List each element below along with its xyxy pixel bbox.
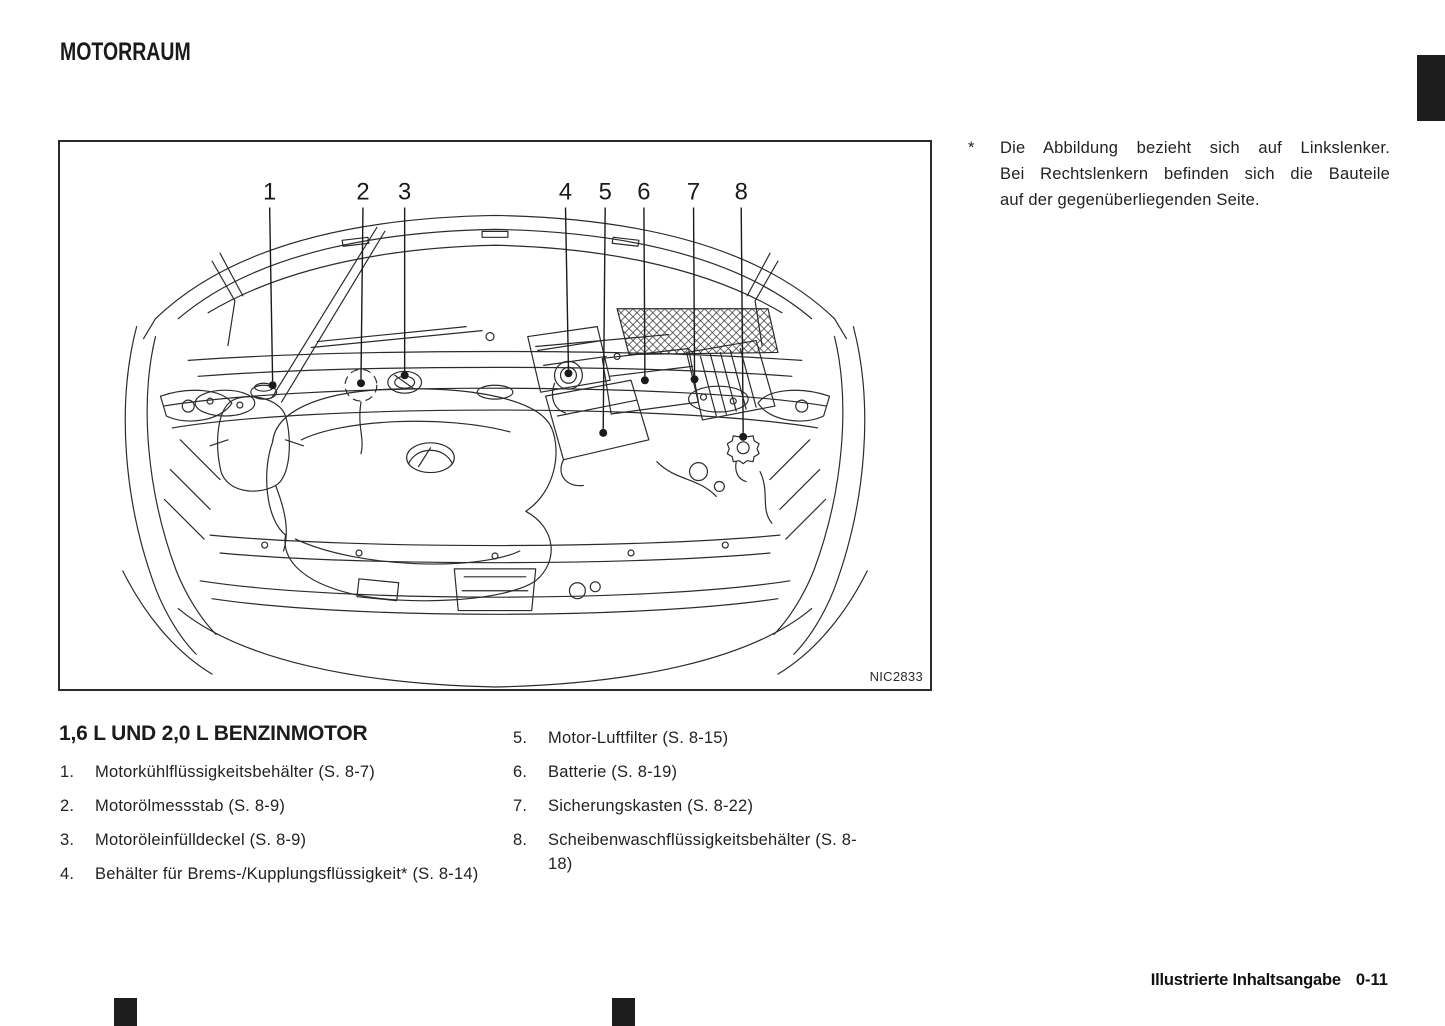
right-fender — [758, 327, 867, 674]
callout-number: 3 — [398, 179, 411, 206]
note-block: * Die Abbildung bezieht sich auf Linksle… — [968, 135, 1390, 213]
page-title: MOTORRAUM — [60, 38, 191, 67]
legend-list-left: 1. Motorkühlflüssigkeitsbehälter (S. 8-7… — [60, 760, 490, 896]
section-tab-marker — [1417, 55, 1445, 121]
legend-item-number: 5. — [513, 726, 548, 750]
cowl-and-wipers — [188, 309, 802, 377]
legend-item: 1. Motorkühlflüssigkeitsbehälter (S. 8-7… — [60, 760, 490, 784]
legend-item-number: 4. — [60, 862, 95, 886]
footer-page-number: 0-11 — [1356, 971, 1388, 990]
footer-section-label: Illustrierte Inhaltsangabe — [1151, 971, 1341, 990]
legend-item-text: Motoröleinfülldeckel (S. 8-9) — [95, 828, 480, 852]
legend-item-text: Scheibenwaschflüssigkeitsbehälter (S. 8-… — [548, 828, 880, 876]
legend-item-text: Behälter für Brems-/Kupplungsflüssigkeit… — [95, 862, 480, 886]
note-line: auf der gegenüberliegenden Seite. — [1000, 187, 1390, 213]
note-line: Bei Rechtslenkern befinden sich die Baut… — [1000, 161, 1390, 187]
legend-item: 7. Sicherungskasten (S. 8-22) — [513, 794, 893, 818]
callout-number: 1 — [263, 179, 276, 206]
legend-item-number: 8. — [513, 828, 548, 876]
engine-bay-drawing: 1 2 3 4 5 6 7 8 — [60, 142, 930, 689]
callout-number: 8 — [735, 179, 748, 206]
print-registration-mark — [612, 998, 635, 1026]
figure-code: NIC2833 — [870, 669, 923, 684]
engine-compartment-figure: 1 2 3 4 5 6 7 8 NIC2833 — [58, 140, 932, 691]
legend-heading: 1,6 L UND 2,0 L BENZINMOTOR — [59, 722, 368, 746]
legend-item-text: Batterie (S. 8-19) — [548, 760, 880, 784]
legend-list-right: 5. Motor-Luftfilter (S. 8-15) 6. Batteri… — [513, 726, 893, 886]
callout-number: 6 — [637, 179, 650, 206]
legend-item-text: Sicherungskasten (S. 8-22) — [548, 794, 880, 818]
legend-item: 2. Motorölmessstab (S. 8-9) — [60, 794, 490, 818]
note-asterisk: * — [968, 135, 975, 161]
callout-number: 2 — [356, 179, 369, 206]
hose-details — [657, 462, 772, 524]
brand-logo-icon — [407, 443, 455, 473]
legend-item-text: Motorkühlflüssigkeitsbehälter (S. 8-7) — [95, 760, 480, 784]
legend-item-number: 1. — [60, 760, 95, 784]
legend-item: 6. Batterie (S. 8-19) — [513, 760, 893, 784]
page-footer: Illustrierte Inhaltsangabe 0-11 — [1151, 971, 1388, 990]
print-registration-mark — [114, 998, 137, 1026]
callout-number: 7 — [687, 179, 700, 206]
callout-number: 5 — [599, 179, 612, 206]
manual-page: { "page": { "title": "MOTORRAUM", "foote… — [0, 0, 1445, 1026]
legend-item-number: 3. — [60, 828, 95, 852]
legend-item: 4. Behälter für Brems-/Kupplungsflüssigk… — [60, 862, 490, 886]
legend-item-number: 6. — [513, 760, 548, 784]
callout-numbers: 1 2 3 4 5 6 7 8 — [263, 179, 748, 206]
legend-item-number: 2. — [60, 794, 95, 818]
legend-item-number: 7. — [513, 794, 548, 818]
left-fender — [123, 327, 232, 674]
legend-item: 5. Motor-Luftfilter (S. 8-15) — [513, 726, 893, 750]
coolant-reservoir-shape — [210, 383, 303, 551]
note-line: Die Abbildung bezieht sich auf Linkslenk… — [1000, 135, 1390, 161]
legend-item: 3. Motoröleinfülldeckel (S. 8-9) — [60, 828, 490, 852]
front-support-and-bumper — [178, 535, 811, 687]
legend-item-text: Motor-Luftfilter (S. 8-15) — [548, 726, 880, 750]
callout-number: 4 — [559, 179, 572, 206]
legend-item-text: Motorölmessstab (S. 8-9) — [95, 794, 480, 818]
washer-fluid-cap-shape — [727, 434, 759, 482]
legend-item: 8. Scheibenwaschflüssigkeitsbehälter (S.… — [513, 828, 893, 876]
